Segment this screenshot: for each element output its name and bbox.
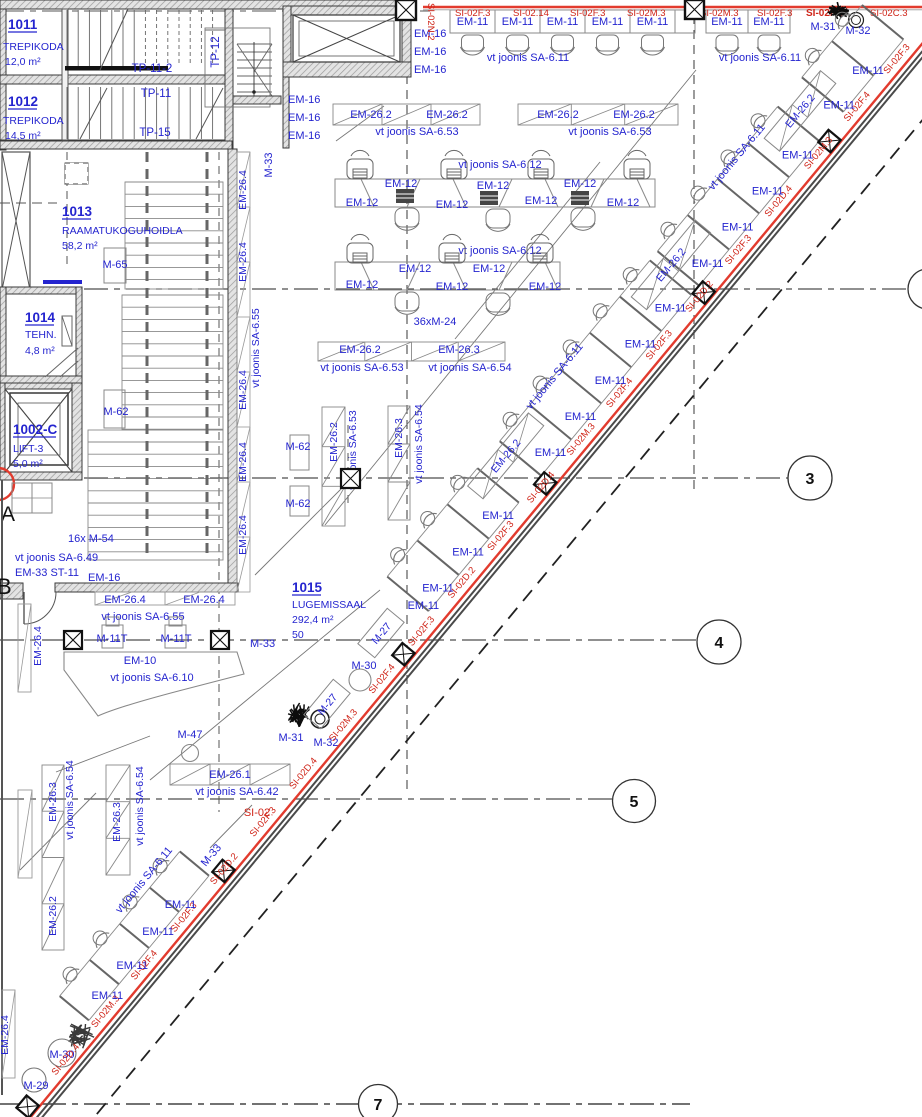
svg-text:M-47: M-47 — [177, 729, 202, 741]
svg-text:5,0 m²: 5,0 m² — [13, 458, 43, 470]
svg-text:EM-10: EM-10 — [124, 655, 156, 667]
svg-text:vt joonis SA-6.53: vt joonis SA-6.53 — [320, 362, 403, 374]
svg-text:TREPIKODA: TREPIKODA — [3, 41, 64, 53]
svg-text:50: 50 — [292, 629, 304, 641]
svg-text:EM-12: EM-12 — [436, 199, 468, 211]
svg-text:EM-16: EM-16 — [414, 46, 446, 58]
svg-text:SI-02N.2: SI-02N.2 — [425, 3, 436, 41]
svg-text:EM-26.4: EM-26.4 — [237, 515, 249, 555]
svg-text:vt joonis SA-6.53: vt joonis SA-6.53 — [375, 126, 458, 138]
svg-text:EM-26.3: EM-26.3 — [47, 782, 59, 822]
svg-text:EM-12: EM-12 — [525, 195, 557, 207]
svg-text:EM-16: EM-16 — [288, 130, 320, 142]
svg-text:EM-11: EM-11 — [625, 339, 657, 351]
svg-text:1014: 1014 — [25, 310, 56, 325]
svg-text:M-65: M-65 — [102, 259, 127, 271]
svg-text:EM-26.4: EM-26.4 — [237, 442, 249, 482]
svg-text:RAAMATUKOGUHOIDLA: RAAMATUKOGUHOIDLA — [62, 225, 183, 237]
svg-text:M-33: M-33 — [250, 638, 275, 650]
svg-text:EM-12: EM-12 — [399, 263, 431, 275]
svg-text:3: 3 — [806, 471, 815, 488]
svg-text:EM-26.2: EM-26.2 — [613, 109, 655, 121]
svg-text:vt joonis SA-6.55: vt joonis SA-6.55 — [250, 308, 262, 388]
svg-text:EM-26.2: EM-26.2 — [328, 422, 340, 462]
svg-text:A: A — [1, 503, 15, 526]
svg-text:EM-26.3: EM-26.3 — [438, 344, 480, 356]
svg-text:EM-26.2: EM-26.2 — [537, 109, 579, 121]
svg-text:1002-C: 1002-C — [13, 422, 58, 437]
svg-text:EM-11: EM-11 — [655, 303, 687, 315]
svg-text:EM-26.4: EM-26.4 — [104, 594, 146, 606]
svg-text:vt joonis SA-6.10: vt joonis SA-6.10 — [110, 672, 193, 684]
svg-text:14,5 m²: 14,5 m² — [5, 130, 41, 142]
svg-text:EM-26.3: EM-26.3 — [393, 418, 405, 458]
svg-text:12,0 m²: 12,0 m² — [5, 56, 41, 68]
svg-text:EM-11: EM-11 — [422, 582, 454, 594]
svg-text:M-33: M-33 — [263, 152, 275, 177]
svg-text:EM-16: EM-16 — [88, 572, 120, 584]
svg-text:B: B — [0, 574, 12, 599]
svg-text:4: 4 — [715, 635, 724, 652]
svg-text:292,4 m²: 292,4 m² — [292, 614, 334, 626]
svg-text:EM-11: EM-11 — [852, 65, 884, 77]
svg-text:M-62: M-62 — [285, 441, 310, 453]
svg-text:M-62: M-62 — [285, 498, 310, 510]
svg-text:vt joonis SA-6.12: vt joonis SA-6.12 — [458, 245, 541, 257]
svg-text:EM-11: EM-11 — [408, 600, 440, 612]
svg-text:EM-26.2: EM-26.2 — [47, 896, 59, 936]
svg-text:1013: 1013 — [62, 204, 93, 219]
svg-text:M-30: M-30 — [351, 660, 376, 672]
svg-text:vt joonis SA-6.54: vt joonis SA-6.54 — [428, 362, 511, 374]
svg-text:EM-11: EM-11 — [92, 990, 124, 1002]
svg-text:TP-15: TP-15 — [139, 127, 170, 139]
svg-text:EM-16: EM-16 — [288, 94, 320, 106]
svg-text:5: 5 — [630, 794, 639, 811]
svg-text:vt joonis SA-6.53: vt joonis SA-6.53 — [568, 126, 651, 138]
svg-text:M-29: M-29 — [23, 1080, 48, 1092]
svg-text:EM-11: EM-11 — [722, 222, 754, 234]
svg-text:vt joonis SA-6.54: vt joonis SA-6.54 — [134, 766, 146, 846]
svg-text:TP-12: TP-12 — [210, 36, 222, 67]
svg-text:36xM-24: 36xM-24 — [414, 316, 457, 328]
svg-text:M-11T: M-11T — [97, 633, 128, 645]
svg-text:TREPIKODA: TREPIKODA — [3, 115, 64, 127]
svg-text:EM-12: EM-12 — [607, 197, 639, 209]
svg-text:EM-26.4: EM-26.4 — [183, 594, 225, 606]
svg-text:EM-12: EM-12 — [473, 263, 505, 275]
svg-text:EM-11: EM-11 — [482, 510, 514, 522]
svg-text:M-31: M-31 — [278, 732, 303, 744]
svg-text:EM-16: EM-16 — [414, 64, 446, 76]
svg-text:EM-26.1: EM-26.1 — [209, 769, 251, 781]
svg-text:EM-11: EM-11 — [535, 447, 567, 459]
svg-text:vt joonis SA-6.49: vt joonis SA-6.49 — [15, 552, 98, 564]
svg-text:EM-11: EM-11 — [823, 99, 855, 111]
svg-text:1012: 1012 — [8, 94, 38, 109]
svg-text:EM-12: EM-12 — [385, 178, 417, 190]
svg-text:EM-26.2: EM-26.2 — [426, 109, 468, 121]
svg-text:EM-26.4: EM-26.4 — [0, 1015, 11, 1055]
svg-text:TEHN.: TEHN. — [25, 329, 57, 341]
svg-text:EM-12: EM-12 — [477, 180, 509, 192]
svg-text:M-32: M-32 — [845, 25, 870, 37]
svg-text:EM-11: EM-11 — [752, 186, 784, 198]
svg-text:LUGEMISSAAL: LUGEMISSAAL — [292, 599, 366, 611]
svg-text:1011: 1011 — [8, 17, 38, 32]
svg-text:M-11T: M-11T — [161, 633, 192, 645]
svg-text:TP-11: TP-11 — [141, 88, 171, 100]
svg-text:EM-12: EM-12 — [564, 178, 596, 190]
svg-text:EM-11: EM-11 — [565, 411, 597, 423]
svg-text:vt joonis SA-6.11: vt joonis SA-6.11 — [719, 52, 801, 64]
svg-text:EM-12: EM-12 — [346, 197, 378, 209]
svg-text:SI-02M.3: SI-02M.3 — [627, 8, 666, 19]
svg-text:EM-16: EM-16 — [288, 112, 320, 124]
svg-text:EM-11: EM-11 — [452, 546, 484, 558]
svg-text:EM-11: EM-11 — [142, 926, 174, 938]
svg-text:EM-11: EM-11 — [595, 375, 627, 387]
svg-text:1015: 1015 — [292, 580, 323, 595]
svg-text:vt joonis SA-6.42: vt joonis SA-6.42 — [195, 786, 278, 798]
svg-text:EM-12: EM-12 — [346, 279, 378, 291]
svg-text:7: 7 — [374, 1097, 383, 1114]
svg-text:EM-12: EM-12 — [529, 281, 561, 293]
svg-text:4,8 m²: 4,8 m² — [25, 345, 55, 357]
svg-text:EM-26.4: EM-26.4 — [32, 626, 44, 666]
svg-text:M-62: M-62 — [103, 406, 128, 418]
svg-text:LIFT-3: LIFT-3 — [13, 443, 44, 455]
svg-text:M-31: M-31 — [810, 21, 835, 33]
svg-text:vt joonis SA-6.54: vt joonis SA-6.54 — [64, 760, 76, 840]
svg-text:EM-26.4: EM-26.4 — [237, 170, 249, 210]
svg-text:58,2 m²: 58,2 m² — [62, 240, 98, 252]
svg-text:EM-26.3: EM-26.3 — [111, 802, 123, 842]
svg-text:TP-11-2: TP-11-2 — [132, 63, 173, 75]
svg-text:EM-11: EM-11 — [782, 149, 814, 161]
svg-text:SI-02.14: SI-02.14 — [513, 8, 549, 19]
svg-text:EM-26.4: EM-26.4 — [237, 370, 249, 410]
svg-text:SI-02M.3: SI-02M.3 — [700, 8, 739, 19]
svg-text:SI-02F.3: SI-02F.3 — [570, 8, 605, 19]
svg-text:EM-26.4: EM-26.4 — [237, 242, 249, 282]
svg-text:EM-33 ST-11: EM-33 ST-11 — [15, 567, 79, 579]
svg-text:vt joonis SA-6.54: vt joonis SA-6.54 — [413, 404, 425, 484]
svg-text:EM-11: EM-11 — [116, 960, 148, 972]
svg-text:SI-02F.3: SI-02F.3 — [455, 8, 490, 19]
svg-text:16x M-54: 16x M-54 — [68, 533, 114, 545]
svg-text:EM-26.2: EM-26.2 — [350, 109, 392, 121]
svg-text:EM-26.2: EM-26.2 — [339, 344, 381, 356]
svg-text:vt joonis SA-6.11: vt joonis SA-6.11 — [487, 52, 569, 64]
svg-text:EM-11: EM-11 — [692, 258, 724, 270]
svg-text:EM-11: EM-11 — [165, 899, 197, 911]
svg-text:EM-12: EM-12 — [436, 281, 468, 293]
svg-text:SI-02F.3: SI-02F.3 — [757, 8, 792, 19]
